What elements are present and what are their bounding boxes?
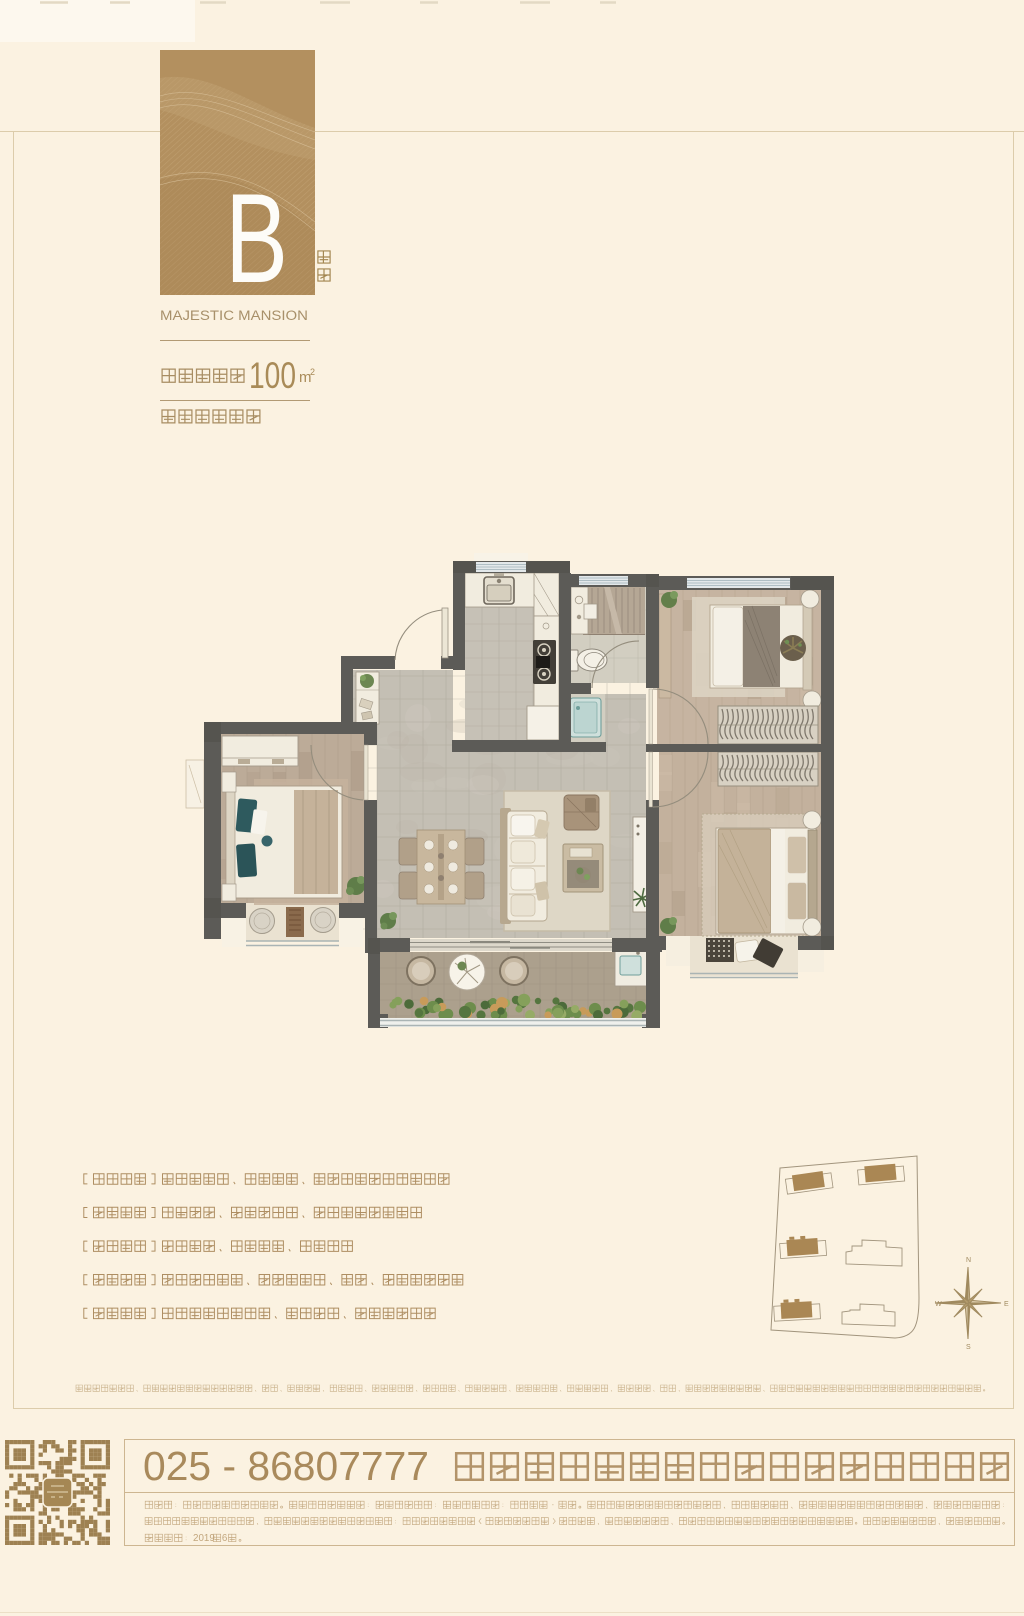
svg-text:S: S — [966, 1344, 971, 1351]
svg-text:100: 100 — [249, 355, 296, 396]
svg-text:MAJESTIC MANSION: MAJESTIC MANSION — [160, 308, 308, 323]
svg-text:6: 6 — [222, 1533, 228, 1544]
svg-text:E: E — [1004, 1301, 1009, 1308]
svg-text:N: N — [966, 1257, 971, 1264]
svg-text:W: W — [935, 1301, 942, 1308]
svg-text:B: B — [225, 167, 288, 309]
svg-text:2: 2 — [310, 367, 315, 377]
svg-text:2019: 2019 — [193, 1533, 215, 1544]
svg-text:025 - 86807777: 025 - 86807777 — [143, 1443, 429, 1489]
